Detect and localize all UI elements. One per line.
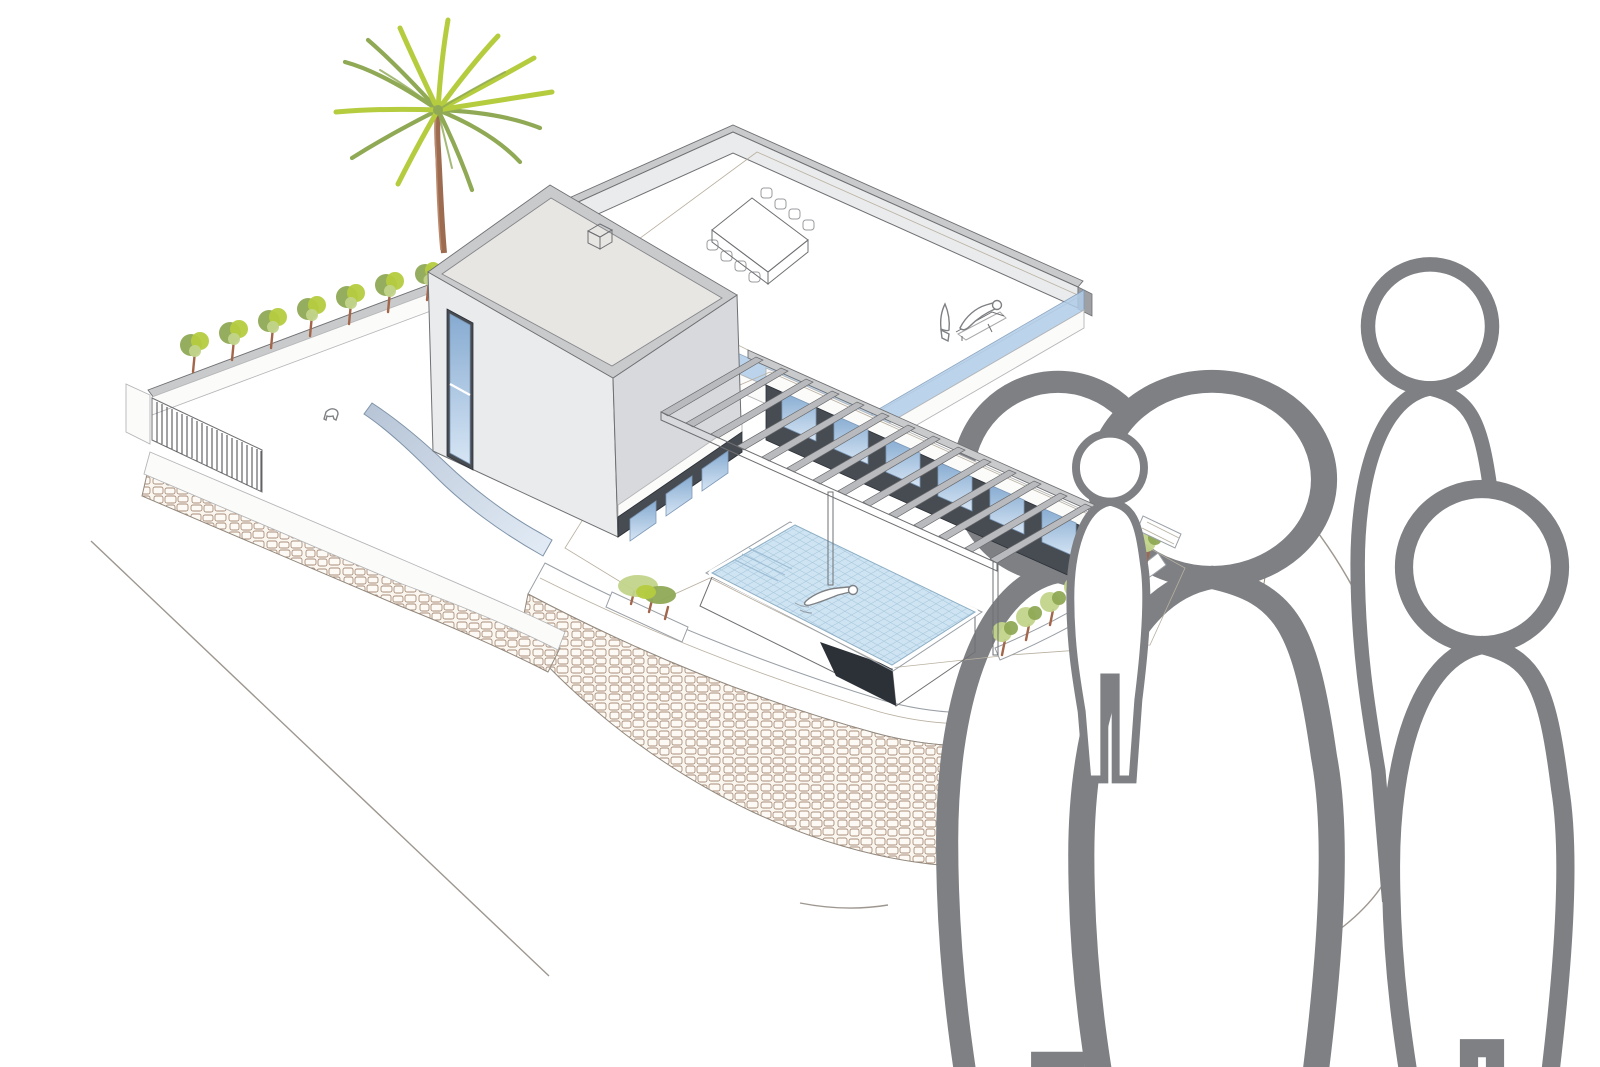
illustration-canvas: Axonometric architectural illustration o… — [0, 0, 1600, 1067]
dining-chair — [761, 188, 772, 198]
dining-chair — [775, 199, 786, 209]
person-by-pool — [1391, 489, 1565, 1067]
palm-fronds — [336, 20, 552, 190]
roof-potted-plant — [941, 304, 950, 341]
sun-lounger-with-person — [956, 301, 1006, 342]
dining-chair — [803, 220, 814, 230]
gate-pillar — [126, 384, 150, 444]
main-house-cube — [428, 185, 742, 541]
cube-slit-window — [447, 309, 473, 470]
dog — [324, 409, 338, 420]
street-edge-south — [800, 903, 888, 908]
roof-dining-set — [707, 188, 814, 284]
dining-chair — [789, 209, 800, 219]
dining-table-side — [768, 240, 808, 284]
villa-axonometric-drawing — [0, 0, 1600, 1067]
hedge-tree — [180, 332, 209, 372]
